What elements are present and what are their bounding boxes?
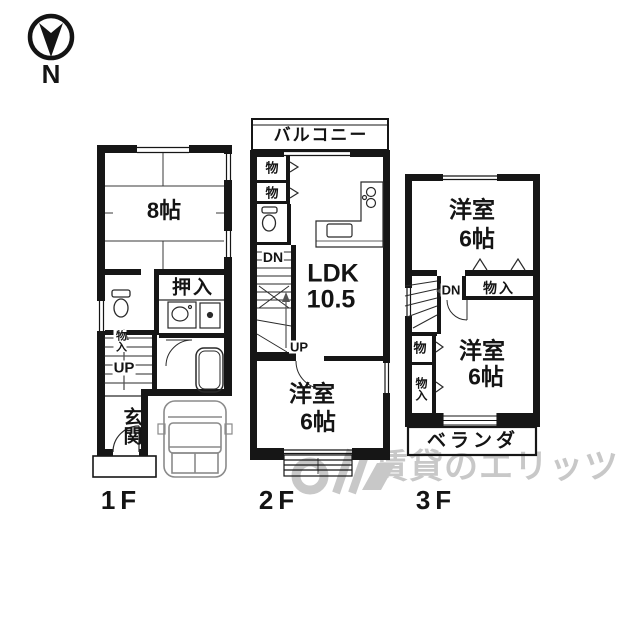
north-compass-icon — [30, 16, 72, 58]
washing-machine-icon — [200, 303, 220, 328]
floorplan-page: { "compass": { "north_label": "N" }, "wa… — [0, 0, 640, 640]
balcony-label-2f: バルコニー — [274, 127, 369, 144]
room-label-8jo: 8帖 — [146, 200, 182, 222]
room-label-ldk: LDK — [307, 262, 358, 287]
room-label-yoshitsu-3f-upper: 洋室 — [449, 199, 495, 222]
stairs-dn-label-2f: DN — [262, 250, 284, 264]
toilet-icon-2f — [262, 207, 277, 231]
floor-label-3f: 3F — [416, 487, 456, 513]
stairs-dn-label-3f: DN — [441, 284, 462, 297]
floor-label-1f: 1F — [101, 487, 141, 513]
closet-label-monoire-1f: 物入 — [114, 330, 127, 352]
room-size-yoshitsu-3f-upper: 6帖 — [459, 228, 495, 251]
room-size-yoshitsu-3f-lower: 6帖 — [468, 366, 504, 389]
door-arc-3f — [447, 300, 467, 320]
closet-label-monoire-3f-lower: 物入 — [414, 377, 428, 401]
floor1-plan — [93, 145, 232, 477]
closet-label-oshiire-1f: 押入 — [172, 279, 214, 298]
washbasin-icon — [168, 302, 196, 328]
floor-label-2f: 2F — [259, 487, 299, 513]
toilet-icon-1f — [112, 290, 130, 317]
veranda-label-3f: ベランダ — [427, 432, 519, 451]
sink-icon — [327, 224, 352, 237]
storage-label-3f: 物 — [412, 342, 427, 355]
stairs-up-label-1f: UP — [113, 361, 136, 376]
kitchen-counter-icon — [316, 182, 383, 247]
entrance-label-genkan: 玄関 — [122, 407, 141, 445]
compass-north-label: N — [42, 61, 61, 87]
stove-icon — [363, 188, 376, 208]
veranda-step-3f — [443, 413, 497, 427]
room-size-yoshitsu-2f: 6帖 — [300, 411, 336, 434]
room-label-yoshitsu-2f: 洋室 — [289, 383, 335, 406]
room-label-yoshitsu-3f-lower: 洋室 — [459, 340, 505, 363]
stairs-up-label-2f: UP — [289, 341, 309, 354]
car-icon — [158, 401, 232, 477]
floorplan-drawing — [0, 0, 640, 640]
stairs-2f — [257, 252, 291, 352]
closet-door-marks-2f — [290, 162, 298, 198]
storage-label-2f-1: 物 — [264, 162, 279, 175]
entrance-porch — [93, 456, 156, 477]
bathtub-icon — [166, 340, 223, 392]
storage-label-2f-2: 物 — [264, 187, 279, 200]
room-size-ldk: 10.5 — [307, 288, 356, 313]
closet-label-monoire-3f-upper: 物入 — [483, 281, 515, 295]
